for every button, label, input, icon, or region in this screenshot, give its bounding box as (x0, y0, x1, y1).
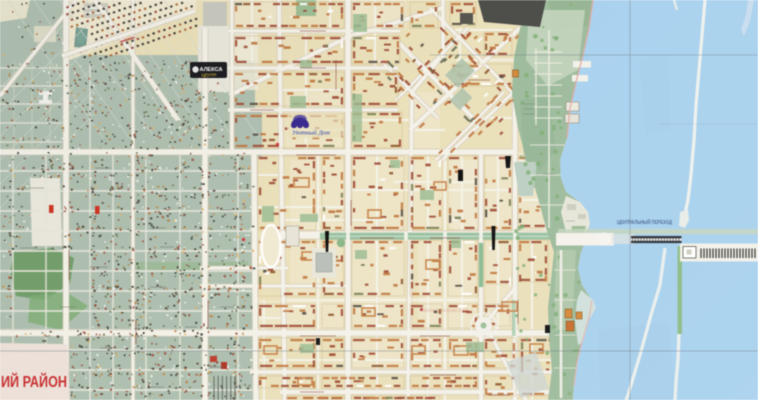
svg-text:ВОРОШИЛОВСКИЙ: ВОРОШИЛОВСКИЙ (424, 306, 468, 313)
svg-text:Уютный Дом: Уютный Дом (292, 130, 331, 137)
svg-text:ИЙ РАЙОН: ИЙ РАЙОН (1, 373, 67, 391)
svg-text:ЦЕНТР: ЦЕНТР (202, 73, 217, 78)
svg-text:ЦЕНТРАЛЬНЫЙ ПЕРЕХОД: ЦЕНТРАЛЬНЫЙ ПЕРЕХОД (617, 218, 672, 226)
